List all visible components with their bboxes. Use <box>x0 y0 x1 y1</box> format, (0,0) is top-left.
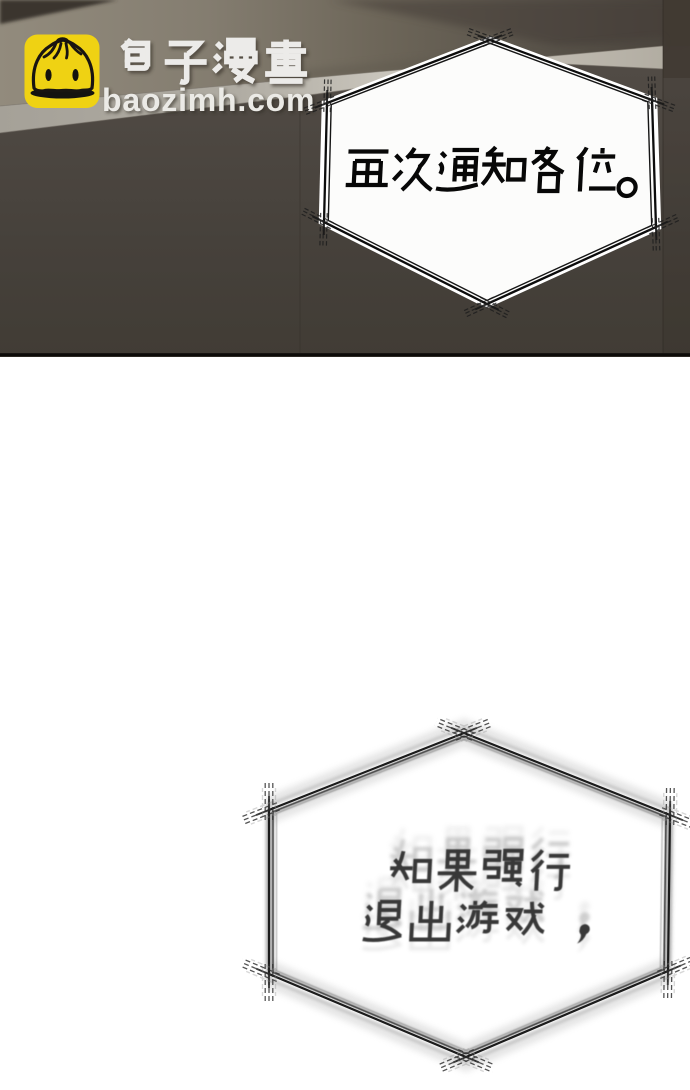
svg-text:baozimh.com: baozimh.com <box>102 82 315 118</box>
